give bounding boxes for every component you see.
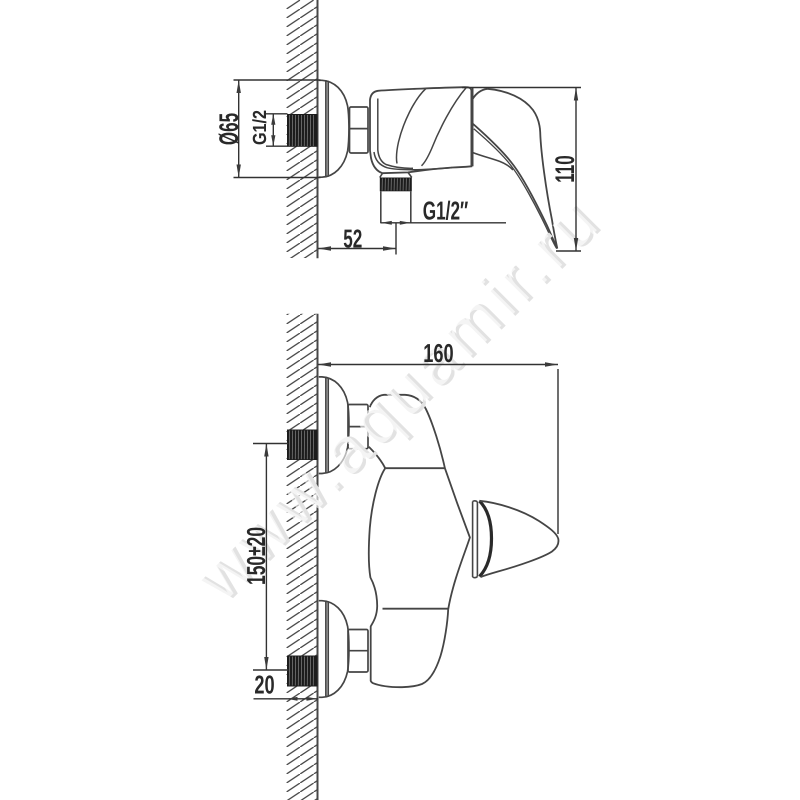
svg-text:G1/2″: G1/2″ xyxy=(423,196,468,226)
svg-text:52: 52 xyxy=(343,223,362,253)
svg-text:20: 20 xyxy=(254,670,274,700)
svg-text:G1/2: G1/2 xyxy=(250,110,271,145)
svg-text:110: 110 xyxy=(550,155,580,182)
svg-text:160: 160 xyxy=(423,338,453,368)
svg-text:150±20: 150±20 xyxy=(241,527,271,585)
svg-text:Ø65: Ø65 xyxy=(214,113,244,145)
